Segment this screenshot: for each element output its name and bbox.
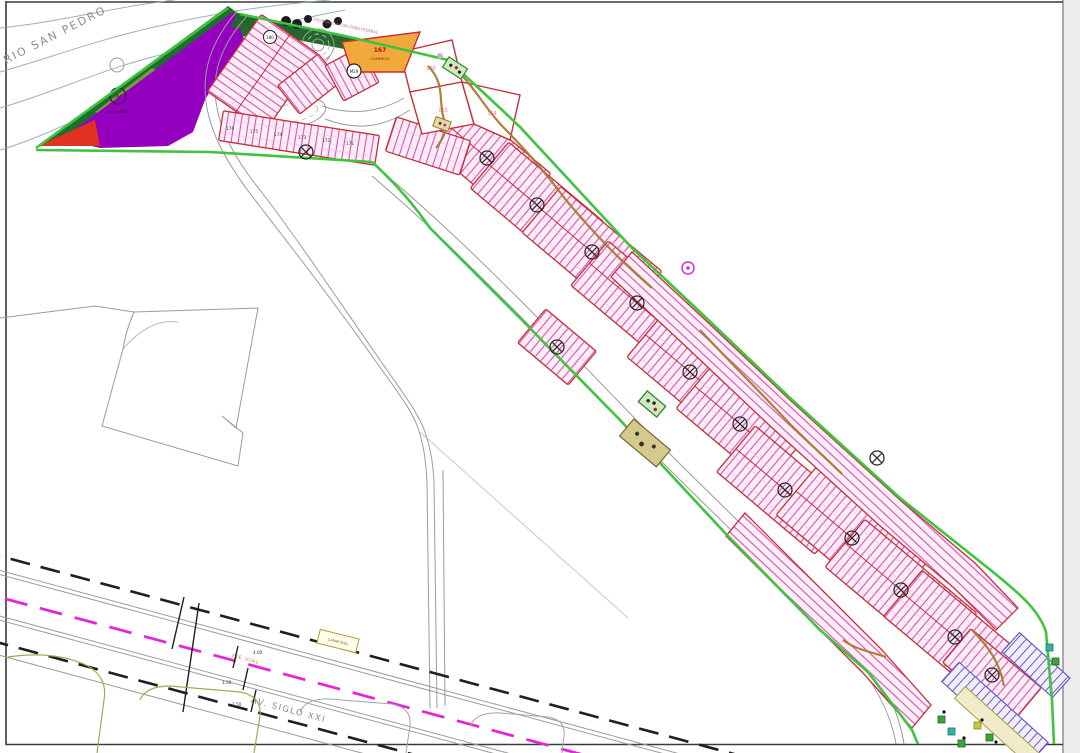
ne-lot-band (611, 252, 1018, 630)
page-edge-shadow (1063, 0, 1080, 753)
river-circle-mark (110, 58, 124, 72)
circled-label-m19: M19 (347, 64, 361, 78)
site-plan-page: RIO SAN PEDRO AV AREA VERDE COLINDANCIA … (0, 0, 1080, 753)
svg-text:4.00: 4.00 (253, 650, 263, 655)
tree-icon (304, 15, 312, 23)
svg-text:171: 171 (346, 141, 355, 147)
svg-text:2.50: 2.50 (232, 702, 242, 707)
svg-text:174: 174 (274, 132, 283, 138)
map-canvas[interactable]: RIO SAN PEDRO AV AREA VERDE COLINDANCIA … (0, 0, 1080, 753)
dot-mark (437, 53, 443, 59)
green-area-caption: AREA VERDE (106, 110, 130, 114)
roadside-box: CARRETERA (317, 629, 359, 652)
playground-icon (638, 391, 665, 417)
facility-area (620, 419, 671, 467)
svg-text:173: 173 (298, 135, 307, 141)
building-footprint (102, 308, 258, 466)
svg-text:176: 176 (226, 126, 235, 132)
utility-mark-dot (686, 266, 690, 270)
commercial-lot-number: 167 (374, 47, 387, 54)
svg-text:175: 175 (250, 129, 259, 135)
property-line (420, 432, 628, 618)
svg-text:172: 172 (322, 138, 331, 144)
svg-text:1.50: 1.50 (222, 680, 232, 685)
circled-label-180: 180 (264, 31, 277, 44)
svg-text:180: 180 (266, 35, 274, 40)
commercial-lot-caption: COMERCIO (370, 57, 390, 61)
river-label: RIO SAN PEDRO (1, 3, 108, 66)
svg-text:M19: M19 (350, 69, 359, 74)
green-area-circle-text: AV (115, 94, 122, 100)
